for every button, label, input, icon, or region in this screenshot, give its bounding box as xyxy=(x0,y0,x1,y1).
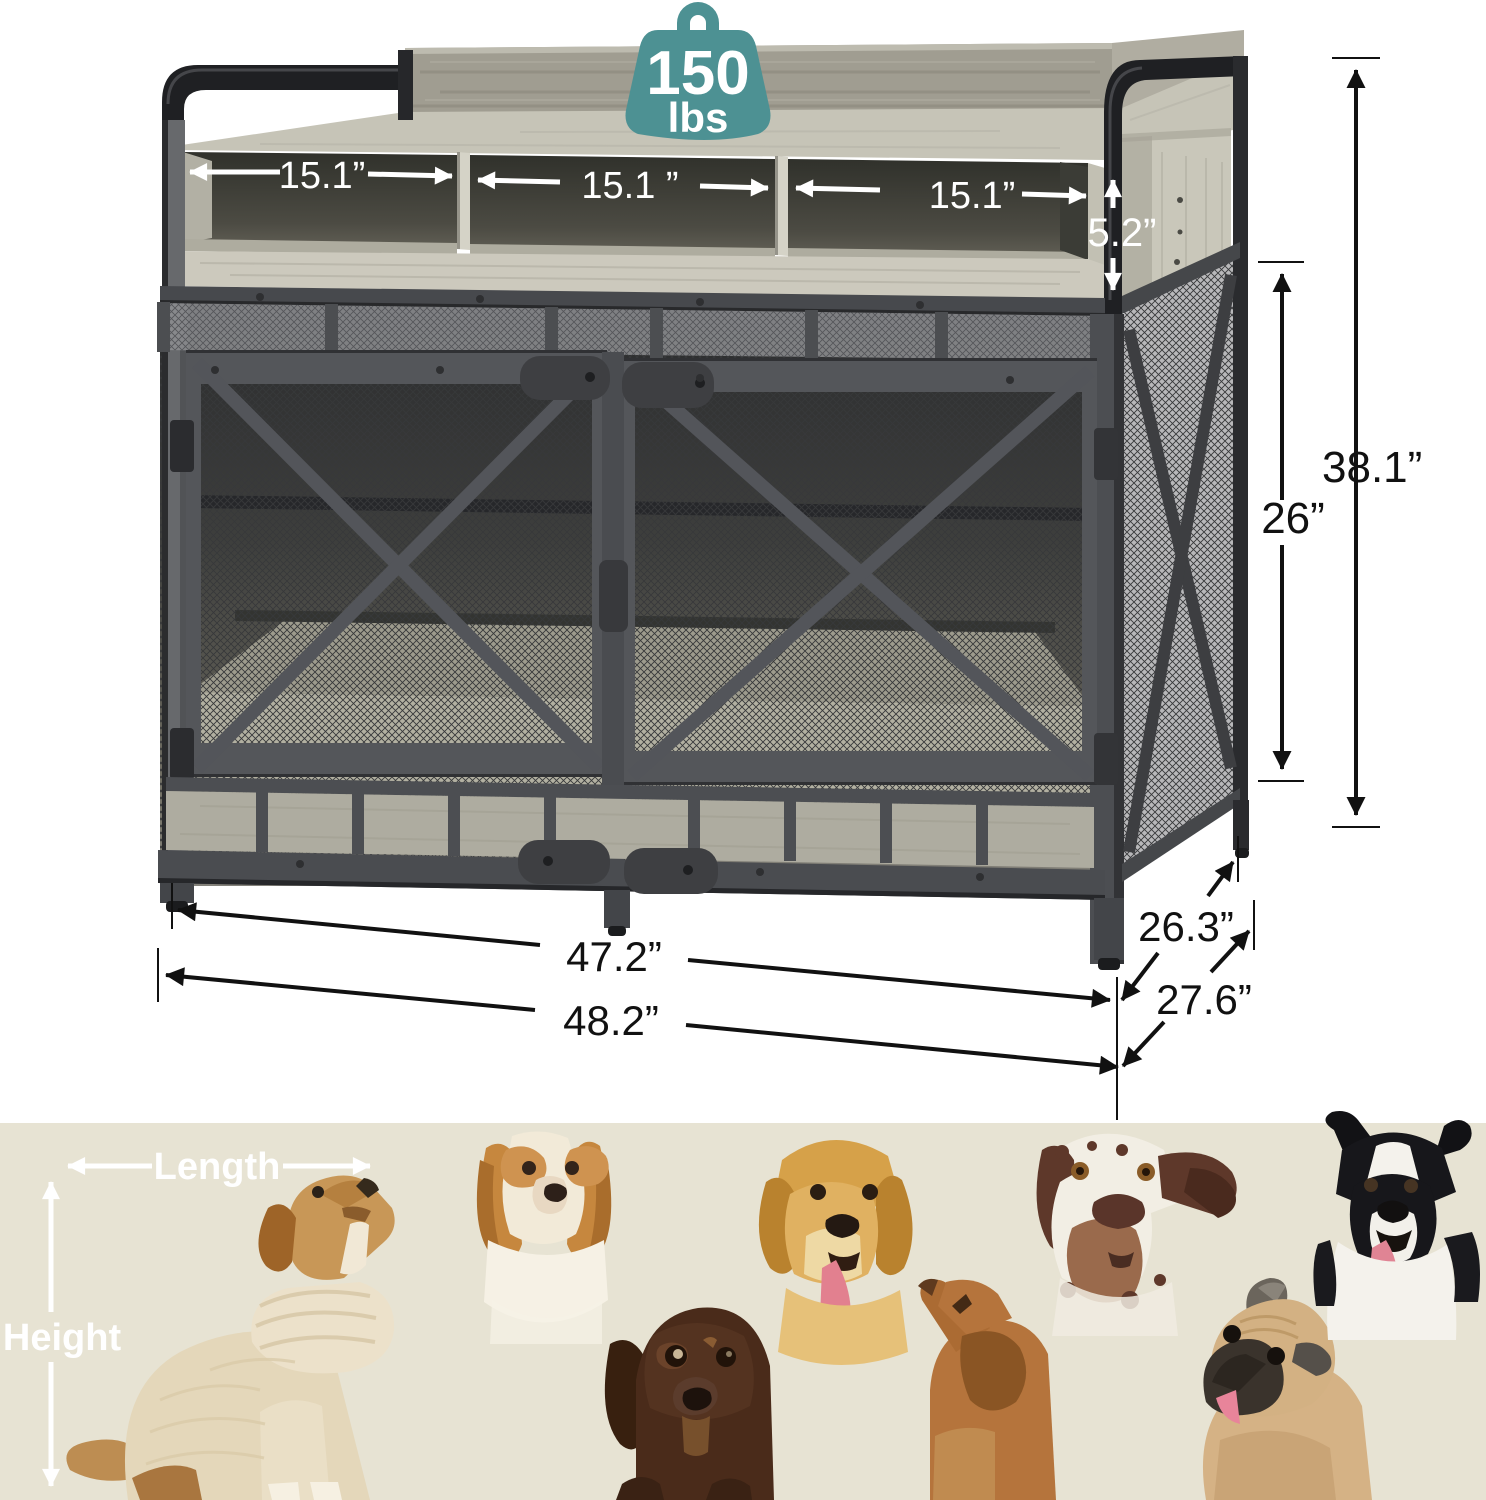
svg-text:26.3”: 26.3” xyxy=(1138,903,1234,950)
svg-text:Height: Height xyxy=(3,1317,122,1359)
svg-text:5.2”: 5.2” xyxy=(1088,211,1157,255)
svg-text:15.1”: 15.1” xyxy=(929,175,1016,217)
svg-text:47.2”: 47.2” xyxy=(566,933,662,980)
svg-text:48.2”: 48.2” xyxy=(563,997,659,1044)
svg-text:27.6”: 27.6” xyxy=(1156,976,1252,1023)
svg-text:38.1”: 38.1” xyxy=(1322,443,1422,492)
svg-text:15.1”: 15.1” xyxy=(279,155,366,197)
svg-text:26”: 26” xyxy=(1261,494,1325,543)
svg-text:lbs: lbs xyxy=(668,94,729,141)
svg-text:15.1 ”: 15.1 ” xyxy=(581,165,678,207)
svg-text:Length: Length xyxy=(154,1146,281,1188)
